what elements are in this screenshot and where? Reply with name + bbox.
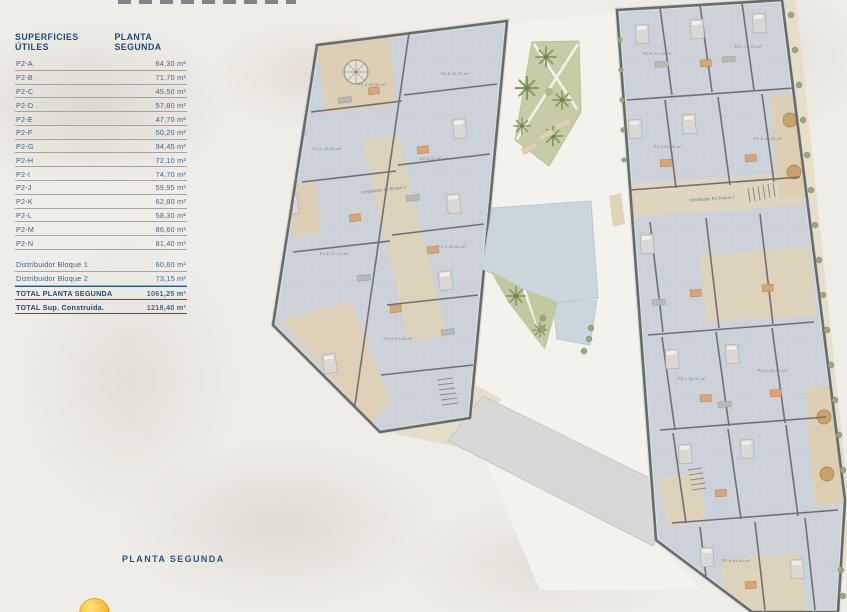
table-row: P2-H72,10 m² xyxy=(15,153,187,167)
row-label: Distribuidor Bloque 2 xyxy=(16,274,88,283)
row-label: TOTAL Sup. Construida. xyxy=(16,303,104,312)
row-label: P2-K xyxy=(16,197,33,206)
row-label: P2-A xyxy=(16,59,33,68)
row-value: 64,30 m² xyxy=(156,59,186,68)
row-label: P2-D xyxy=(16,101,33,110)
row-value: 71,70 m² xyxy=(156,73,186,82)
room-label-p2j: P2-J 59,95 m² xyxy=(654,144,682,149)
table-rows: P2-A64,30 m² P2-B71,70 m² P2-C45,50 m² P… xyxy=(15,57,187,314)
room-label-p2a: P2-A 64,30 m² xyxy=(358,82,387,87)
row-value: 72,10 m² xyxy=(156,156,186,165)
table-row: P2-D57,80 m² xyxy=(15,98,187,112)
spiral-stair-icon xyxy=(344,60,368,84)
row-label: P2-F xyxy=(16,128,33,137)
table-row: P2-E47,70 m² xyxy=(15,112,187,126)
table-row: P2-A64,30 m² xyxy=(15,57,187,71)
row-value: 45,50 m² xyxy=(156,87,186,96)
room-label-p2b: P2-B 71,70 m² xyxy=(441,71,470,76)
room-label-p2h: P2-H 72,10 m² xyxy=(643,51,672,56)
garden-circle xyxy=(545,88,553,96)
row-label: P2-H xyxy=(16,156,33,165)
table-header: SUPERFICIES ÚTILES PLANTA SEGUNDA xyxy=(15,32,201,52)
areas-table: SUPERFICIES ÚTILES PLANTA SEGUNDA P2-A64… xyxy=(15,32,201,314)
table-row: P2-M86,60 m² xyxy=(15,222,187,236)
row-label: Distribuidor Bloque 1 xyxy=(16,260,88,269)
row-label: P2-C xyxy=(16,87,33,96)
row-label: P2-E xyxy=(16,115,33,124)
table-header-left: SUPERFICIES ÚTILES xyxy=(15,32,114,52)
row-value: 59,95 m² xyxy=(156,183,186,192)
row-value: 1061,25 m² xyxy=(147,289,186,298)
row-label: P2-N xyxy=(16,239,33,248)
room-label-p2e: P2-E 47,70 m² xyxy=(320,251,349,256)
row-value: 47,70 m² xyxy=(156,115,186,124)
row-label: P2-B xyxy=(16,73,33,82)
row-value: 62,80 m² xyxy=(156,197,186,206)
row-label: P2-L xyxy=(16,211,32,220)
table-row: P2-I74,70 m² xyxy=(15,167,187,181)
room-label-p2k: P2-K 62,80 m² xyxy=(754,136,783,141)
table-row: P2-F50,20 m² xyxy=(15,126,187,140)
table-row: P2-B71,70 m² xyxy=(15,71,187,85)
sheet-caption: PLANTA SEGUNDA xyxy=(122,554,225,564)
room-label-p2i: P2-I 74,70 m² xyxy=(735,44,762,49)
row-value: 60,60 m² xyxy=(156,260,186,269)
room-label-p2c: P2-C 45,50 m² xyxy=(313,146,342,151)
table-row: P2-G94,45 m² xyxy=(15,140,187,154)
room-label-p2g: P2-G 94,45 m² xyxy=(384,336,413,341)
room-label-p2n: P2-N 81,40 m² xyxy=(722,558,751,563)
row-value: 73,15 m² xyxy=(156,274,186,283)
row-value: 94,45 m² xyxy=(156,142,186,151)
table-section-gap xyxy=(15,250,187,258)
room-label-p2f: P2-F 50,20 m² xyxy=(438,244,467,249)
left-building xyxy=(273,21,507,432)
table-row: Distribuidor Bloque 273,15 m² xyxy=(15,272,187,286)
table-total-row: TOTAL PLANTA SEGUNDA1061,25 m² xyxy=(15,286,187,301)
table-header-right: PLANTA SEGUNDA xyxy=(114,32,201,52)
row-value: 86,60 m² xyxy=(156,225,186,234)
room-label-p2d: P2-D 57,80 m² xyxy=(420,156,449,161)
row-label: P2-I xyxy=(16,170,30,179)
row-label: P2-J xyxy=(16,183,32,192)
room-label-p2m: P2-M 86,60 m² xyxy=(757,368,787,373)
row-value: 1218,40 m² xyxy=(147,303,186,312)
room-label-p2l: P2-L 58,30 m² xyxy=(678,376,706,381)
table-total-row: TOTAL Sup. Construida.1218,40 m² xyxy=(15,300,187,314)
row-value: 74,70 m² xyxy=(156,170,186,179)
row-value: 81,40 m² xyxy=(156,239,186,248)
table-row: P2-C45,50 m² xyxy=(15,85,187,99)
row-label: P2-M xyxy=(16,225,34,234)
row-label: TOTAL PLANTA SEGUNDA xyxy=(16,289,112,298)
row-value: 58,30 m² xyxy=(156,211,186,220)
table-row: P2-L58,30 m² xyxy=(15,209,187,223)
table-row: P2-N81,40 m² xyxy=(15,236,187,250)
table-row: P2-J59,95 m² xyxy=(15,181,187,195)
table-row: P2-K62,80 m² xyxy=(15,195,187,209)
table-row: Distribuidor Bloque 160,60 m² xyxy=(15,258,187,272)
row-value: 57,80 m² xyxy=(156,101,186,110)
row-value: 50,20 m² xyxy=(156,128,186,137)
row-label: P2-G xyxy=(16,142,34,151)
plan-sheet: P2-A 64,30 m² P2-B 71,70 m² P2-C 45,50 m… xyxy=(0,0,847,612)
